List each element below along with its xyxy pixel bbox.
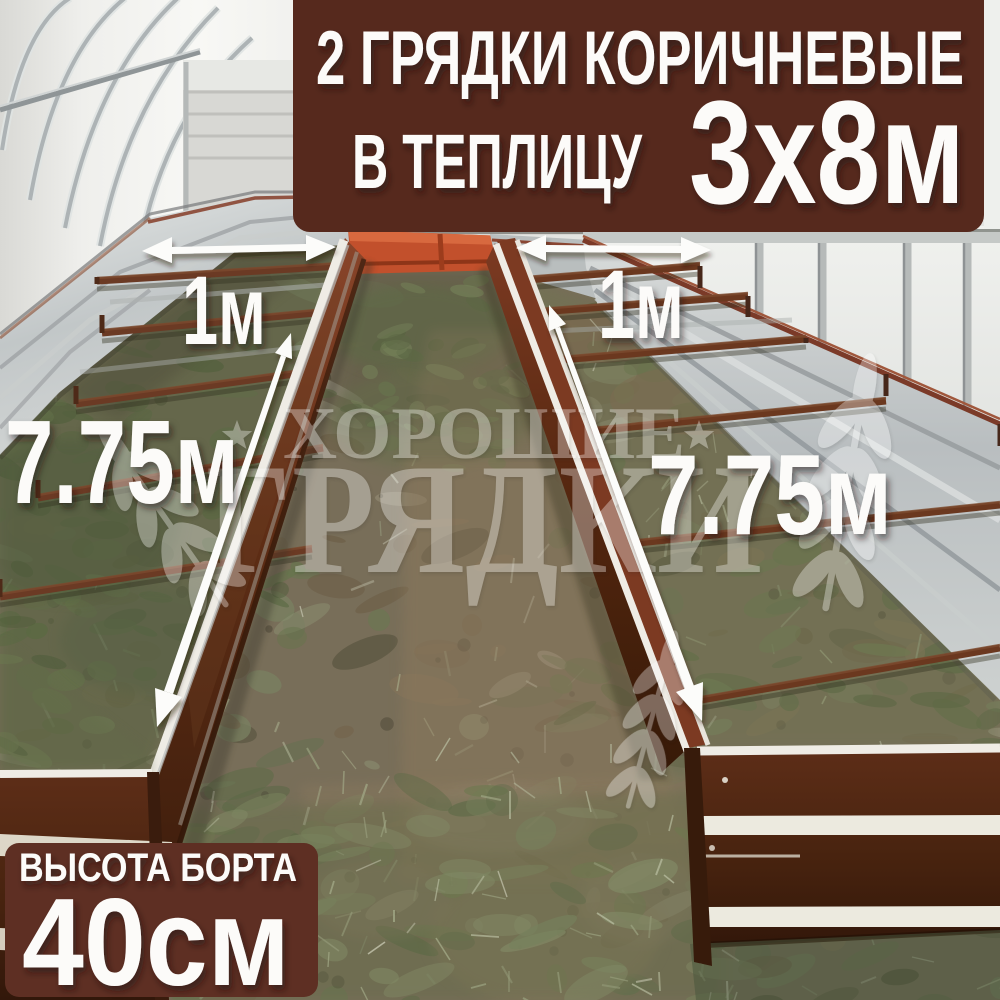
svg-text:В ТЕПЛИЦУ: В ТЕПЛИЦУ — [352, 119, 643, 205]
svg-text:1м: 1м — [598, 250, 684, 359]
svg-text:7.75м: 7.75м — [5, 396, 239, 529]
svg-text:3х8м: 3х8м — [689, 71, 965, 235]
svg-text:7.75м: 7.75м — [648, 432, 892, 559]
svg-text:40см: 40см — [22, 874, 290, 1000]
svg-text:1м: 1м — [182, 256, 266, 365]
